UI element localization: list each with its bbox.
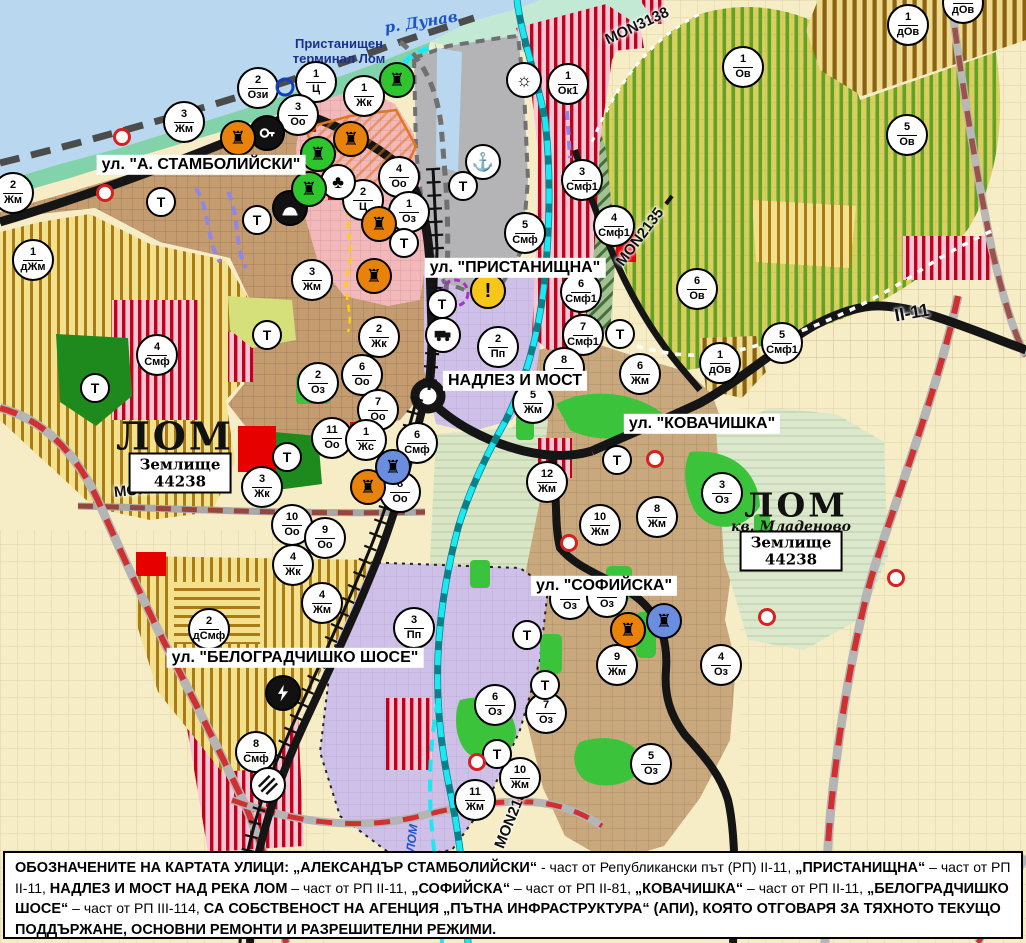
red-dot-marker [758,608,776,626]
zone-marker: 5Смф1 [761,322,803,364]
zone-marker: 3Пп [393,607,435,649]
zone-marker: 3Жм [291,259,333,301]
t-marker: Т [602,445,632,475]
zone-marker: 3Оз [701,472,743,514]
footer-text-segment: „ПРИСТАНИЩНА“ [795,860,925,876]
landplot-word: Землище [751,534,832,552]
t-marker: Т [605,319,635,349]
zone-marker: 2Жк [358,316,400,358]
zone-marker: 1дОв [887,4,929,46]
footer-text-segment: „КОВАЧИШКА“ [635,881,743,897]
zone-marker: 4Жм [301,582,343,624]
urban-plan-map: 2Ози1Ц1Жк3Жм3Оо2Жм1дЖм4Оо2Ц1Оз3Жм5Смф1Ок… [0,0,1026,943]
footer-text-segment: - част от Републикански път (РП) II-11, [537,859,795,875]
truck-station-icon [425,317,461,353]
zone-marker: 3Смф1 [561,159,603,201]
warning-icon: ! [470,273,506,309]
footer-text-segment: – част от РП II-11, [287,880,411,896]
zone-marker: 3Жм [163,101,205,143]
landplot-box-right: Землище 44238 [740,531,843,572]
zone-marker: 10Жм [579,504,621,546]
power-icon [265,675,301,711]
t-marker: Т [482,739,512,769]
zone-marker: 6Жм [619,353,661,395]
zone-marker: 4Смф [136,334,178,376]
landplot-code: 44238 [154,472,206,490]
t-marker: Т [530,670,560,700]
t-marker: Т [146,187,176,217]
map-footer-note: ОБОЗНАЧЕНИТЕ НА КАРТАТА УЛИЦИ: „АЛЕКСАНД… [3,851,1023,939]
zone-marker: 4Жк [272,544,314,586]
footer-text-segment: – част от РП II-11, [743,880,867,896]
monument-icon: ♜ [300,136,336,172]
red-dot-marker [646,450,664,468]
zone-marker: 4Оз [700,644,742,686]
footer-text-segment: НАДЛЕЗ И МОСТ НАД РЕКА ЛОМ [50,881,288,897]
footer-text-segment: ОБОЗНАЧЕНИТЕ НА КАРТАТА УЛИЦИ: „АЛЕКСАНД… [15,860,537,876]
red-dot-marker [468,753,486,771]
zone-marker: 3Жк [241,466,283,508]
port-anchor-icon: ⚓ [465,144,501,180]
t-marker: Т [80,373,110,403]
street-label-kovachishka: ул. "КОВАЧИШКА" [624,414,780,434]
zone-marker: 5Оз [630,743,672,785]
monument-icon: ♜ [220,120,256,156]
t-marker: Т [242,205,272,235]
zone-marker: 6Оз [474,684,516,726]
blue-ring-marker [276,78,295,97]
street-label-nadlez-i-most: НАДЛЕЗ И МОСТ [443,371,587,391]
t-marker: Т [252,320,282,350]
zone-marker: 1дОв [699,342,741,384]
zone-marker: 12Жм [526,461,568,503]
monument-icon: ♜ [333,121,369,157]
monument-icon: ♜ [356,258,392,294]
zone-marker: 1Ок1 [547,63,589,105]
zone-marker: 8Жм [636,496,678,538]
port-terminal-line1: Пристанищен [295,36,383,51]
zone-marker: 9Жм [596,644,638,686]
red-dot-marker [96,184,114,202]
footer-text-segment: – част от РП II-81, [510,880,635,896]
t-marker: Т [427,289,457,319]
zone-marker: 5Смф [504,212,546,254]
landplot-box-left: Землище 44238 [129,453,232,494]
street-label-belogradchishko: ул. "БЕЛОГРАДЧИШКО ШОСЕ" [167,648,424,668]
zone-marker: 2Пп [477,326,519,368]
monument-icon: ♜ [361,206,397,242]
t-marker: Т [272,442,302,472]
landplot-word: Землище [140,456,221,474]
sun-icon: ☼ [506,62,542,98]
monument-icon: ♜ [375,449,411,485]
red-dot-marker [887,569,905,587]
monument-icon: ♜ [646,603,682,639]
footer-text-segment: „СОФИЙСКА“ [411,881,510,897]
zone-marker: 4Смф1 [593,205,635,247]
monument-icon: ♜ [379,62,415,98]
railway-crossing-icon [250,767,286,803]
t-marker: Т [512,620,542,650]
zone-marker: 2дСмф [188,608,230,650]
zone-marker: 2Оз [297,362,339,404]
landplot-code: 44238 [765,550,817,568]
red-dot-marker [113,128,131,146]
red-dot-marker [560,534,578,552]
zone-marker: 2Ози [237,67,279,109]
zone-marker: 1дЖм [12,239,54,281]
street-label-pristanishtna: ул. "ПРИСТАНИЩНА" [425,258,606,278]
monument-icon: ♜ [291,171,327,207]
footer-text-segment: – част от РП III-114, [68,900,203,916]
street-label-stambolijski: ул. "А. СТАМБОЛИЙСКИ" [97,155,306,175]
zone-marker: 11Жм [454,779,496,821]
zone-marker: 5Ов [886,114,928,156]
street-label-sofiyska: ул. "СОФИЙСКА" [531,576,677,596]
zone-marker: 1Ов [722,46,764,88]
zone-marker: 6Ов [676,268,718,310]
monument-icon: ♜ [610,612,646,648]
